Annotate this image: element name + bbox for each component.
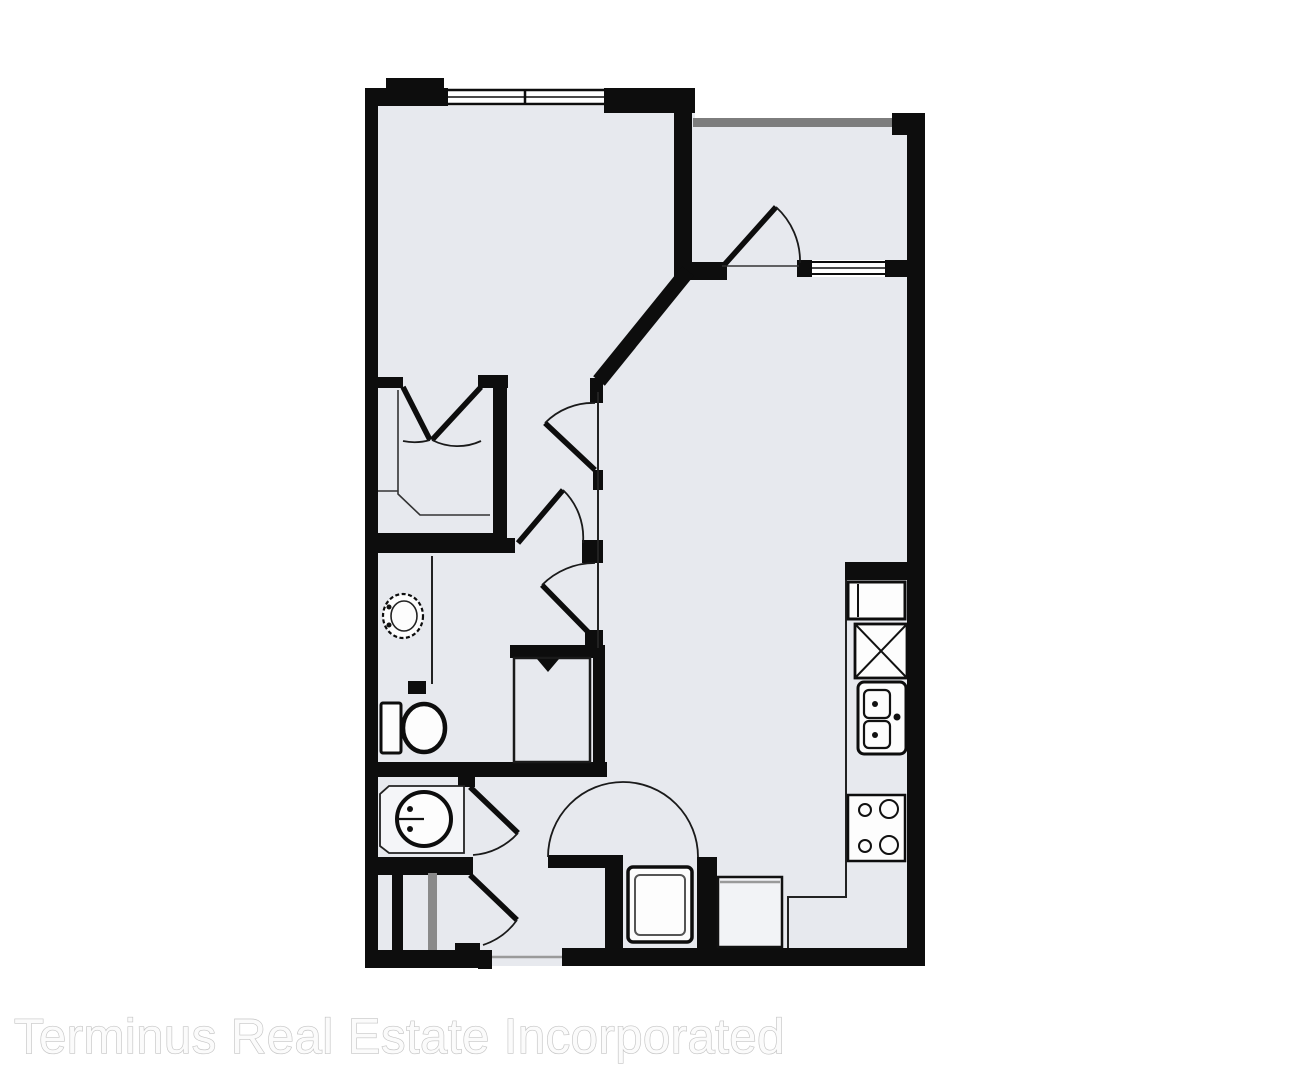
wall-linen-divider — [392, 873, 403, 955]
pantry-x-cabinet — [855, 624, 907, 678]
wall-halfbath-south — [365, 857, 473, 875]
bathroom-sink-faucet-dot2 — [387, 623, 392, 628]
wall-entry-bar — [548, 855, 607, 868]
refrigerator-box — [848, 582, 905, 619]
balcony-window — [812, 260, 885, 277]
kitchen-sink-drain2 — [872, 732, 878, 738]
vanity-end-block — [408, 681, 426, 694]
wall-wd-closet-right — [593, 650, 605, 777]
wall-entry-step — [478, 955, 492, 969]
wall-top-nub — [386, 78, 444, 90]
wall-wd-closet-top — [510, 645, 605, 658]
wall-bedroom-bottom-left — [365, 377, 403, 388]
floorplan-svg: Terminus Real Estate Incorporated — [0, 0, 1295, 1080]
wall-linen-divider-gray — [428, 873, 437, 955]
wall-stub-bedroom-door-top — [590, 378, 603, 403]
wall-bath-south — [365, 762, 607, 777]
wall-entry-jamb — [455, 943, 480, 963]
stove — [848, 795, 905, 861]
wall-kitchen-top-stub — [845, 562, 907, 580]
pantry-cabinet — [718, 877, 782, 947]
kitchen-sink-faucet — [894, 714, 901, 721]
wall-niche-column — [697, 857, 717, 957]
water-heater — [628, 867, 692, 942]
wall-closet-right — [493, 377, 507, 540]
halfbath-faucet-dot1 — [407, 806, 413, 812]
water-heater-outer — [628, 867, 692, 942]
refrigerator — [848, 582, 905, 619]
watermark-text: Terminus Real Estate Incorporated — [14, 1010, 785, 1064]
wall-balcony-jamb-right — [885, 260, 907, 277]
balcony-rail-edge — [693, 118, 892, 127]
wall-right — [907, 113, 925, 966]
wall-bottom-right — [562, 948, 923, 966]
bathroom-sink — [383, 594, 423, 638]
pantry-box — [718, 877, 782, 947]
kitchen-sink-drain1 — [872, 701, 878, 707]
halfbath-vanity — [380, 786, 464, 853]
halfbath-faucet-dot2 — [407, 826, 413, 832]
wall-top-right-corner — [892, 113, 925, 135]
floorplan-image: Terminus Real Estate Incorporated — [0, 0, 1295, 1080]
toilet-tank — [381, 703, 401, 753]
wall-bath-north — [365, 533, 507, 553]
wall-entry-column — [605, 855, 623, 950]
wall-bath-north-block — [500, 538, 515, 553]
wall-block-hall — [582, 540, 603, 563]
wall-top-left — [365, 88, 448, 106]
wall-bedroom-right — [674, 88, 692, 280]
wall-left — [365, 88, 378, 968]
toilet — [381, 703, 445, 753]
kitchen-sink — [858, 682, 906, 754]
bathroom-sink-faucet-dot1 — [387, 605, 392, 610]
bedroom-window — [448, 88, 604, 106]
toilet-bowl — [403, 704, 445, 752]
